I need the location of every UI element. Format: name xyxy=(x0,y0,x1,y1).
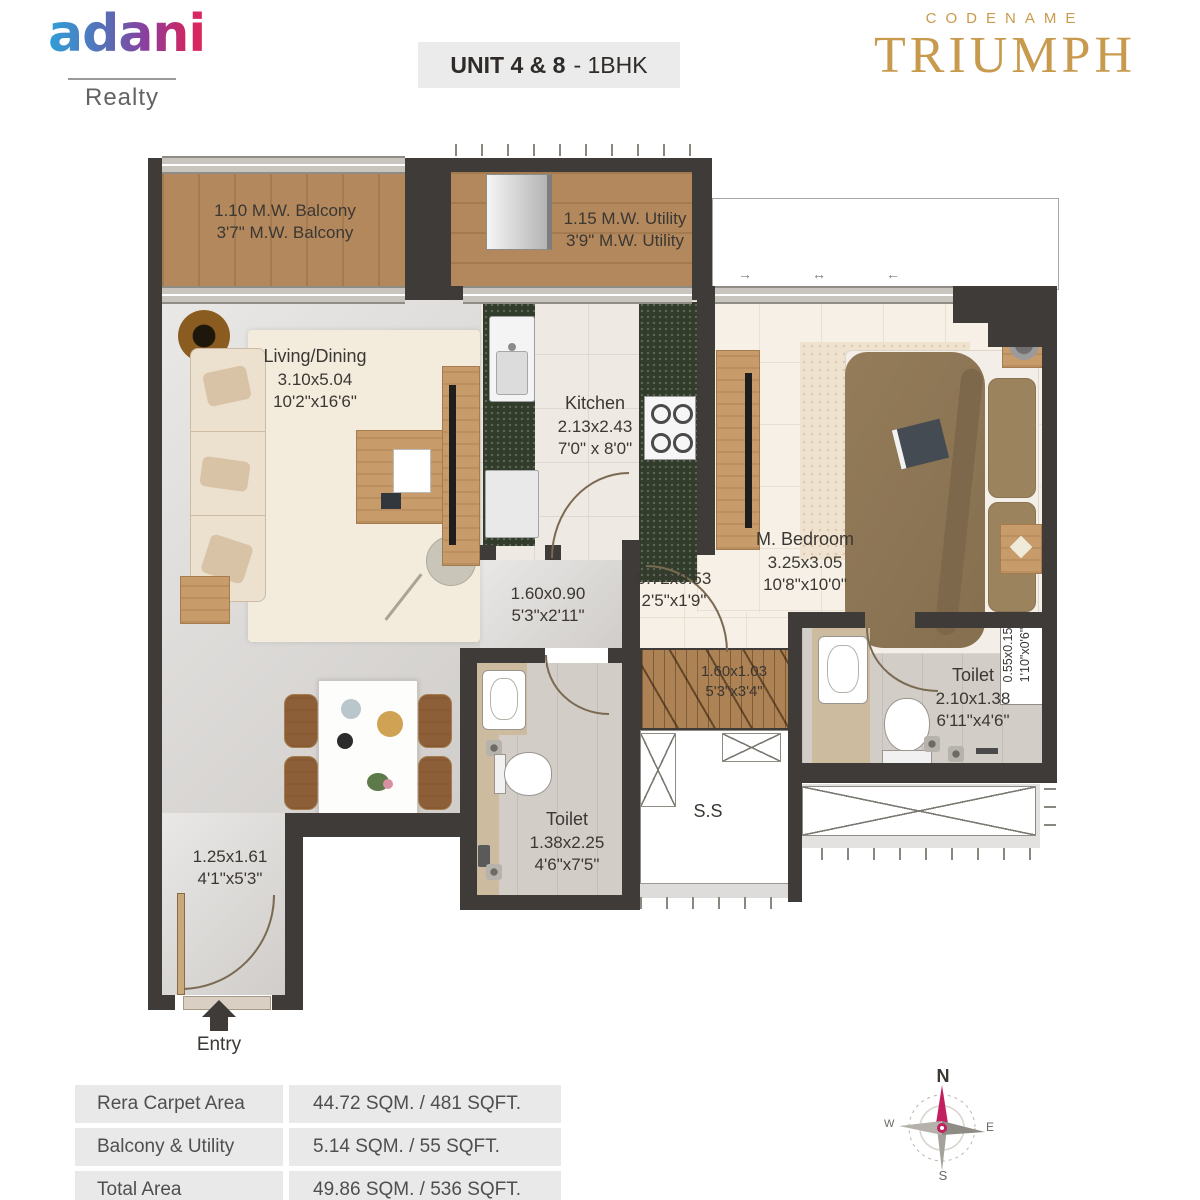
area-row-value: 5.14 SQM. / 55 SQFT. xyxy=(289,1128,561,1166)
coffee-table xyxy=(356,430,448,524)
project-title: TRIUMPH xyxy=(845,26,1165,85)
toilet-common-label: Toilet1.38x2.254'6"x7'5" xyxy=(505,808,629,877)
shaft-cross-box xyxy=(640,733,676,807)
dining-chair xyxy=(284,756,318,810)
flower-decor xyxy=(383,779,393,789)
wall xyxy=(697,300,715,555)
wall xyxy=(788,763,1057,783)
tv-unit xyxy=(442,366,480,566)
wall xyxy=(1042,286,1057,643)
wall xyxy=(285,813,460,837)
dining-chair xyxy=(284,694,318,748)
table-row: Rera Carpet Area 44.72 SQM. / 481 SQFT. xyxy=(75,1085,561,1123)
washing-machine xyxy=(486,174,552,250)
living-window xyxy=(162,286,405,304)
burner xyxy=(673,433,693,453)
compass-north-label: N xyxy=(934,1066,952,1087)
compass-south-label: S xyxy=(936,1168,950,1183)
kitchen-label: Kitchen2.13x2.437'0" x 8'0" xyxy=(533,392,657,461)
washbasin-bowl xyxy=(827,645,859,693)
unit-title-type: - 1BHK xyxy=(573,52,647,78)
kitchen-sink xyxy=(489,316,535,402)
wall-jamb xyxy=(480,545,496,560)
wall xyxy=(692,286,715,300)
floor-drain xyxy=(486,864,502,880)
slider-arrow: ← xyxy=(886,266,900,282)
project-codename: CODENAME xyxy=(855,10,1155,27)
bedroom-tv-screen xyxy=(745,373,752,528)
sink-basin xyxy=(496,351,528,395)
foyer-dim-label: 1.25x1.614'1"x5'3" xyxy=(170,846,290,891)
hatch-ticks xyxy=(795,848,1042,860)
dining-table xyxy=(318,680,418,814)
bed-lobby-dim-label: 0.72x0.532'5"x1'9" xyxy=(622,568,726,613)
unit-title-box: UNIT 4 & 8- 1BHK xyxy=(418,42,680,88)
washbasin xyxy=(818,636,868,704)
logo-divider xyxy=(68,78,176,80)
bedroom-window xyxy=(715,286,955,304)
wall xyxy=(405,286,463,300)
compass-rose xyxy=(892,1078,992,1178)
dining-chair xyxy=(418,694,452,748)
shaft-sill xyxy=(640,883,788,898)
entry-arrow xyxy=(202,1000,236,1017)
area-row-label: Rera Carpet Area xyxy=(75,1085,283,1123)
washbasin xyxy=(482,670,526,730)
table-row: Balcony & Utility 5.14 SQM. / 55 SQFT. xyxy=(75,1128,561,1166)
living-label: Living/Dining3.10x5.0410'2"x16'6" xyxy=(230,345,400,414)
sink-faucet xyxy=(508,343,516,351)
entry-arrow-stem xyxy=(210,1016,228,1031)
wall xyxy=(802,612,865,628)
entry-door-leaf xyxy=(177,893,185,995)
entry-label: Entry xyxy=(184,1032,254,1057)
sofa-pillow xyxy=(199,456,251,492)
wall xyxy=(148,995,175,1010)
washbasin-bowl xyxy=(490,678,518,720)
table-row: Total Area 49.86 SQM. / 536 SQFT. xyxy=(75,1171,561,1200)
coffee-table-notebook xyxy=(381,493,401,509)
compass-west-label: W xyxy=(884,1118,894,1130)
passage-dim-label: 1.60x0.905'3"x2'11" xyxy=(492,583,604,628)
area-row-label: Total Area xyxy=(75,1171,283,1200)
area-row-value: 44.72 SQM. / 481 SQFT. xyxy=(289,1085,561,1123)
towel-rail xyxy=(976,748,998,754)
wall xyxy=(460,648,477,895)
sofa-cushion-line xyxy=(191,431,265,432)
wc-tank xyxy=(882,750,932,764)
nightstand xyxy=(1000,524,1042,574)
wardrobe-dim-label: 1.60x1.035'3"x3'4" xyxy=(688,662,780,702)
compass-east-label: E xyxy=(986,1120,994,1134)
sofa-cushion-line xyxy=(191,515,265,516)
tv-screen xyxy=(449,385,456,545)
nightstand-decor xyxy=(1010,536,1033,559)
balcony-window xyxy=(162,156,405,174)
wc xyxy=(504,752,552,796)
ledge-cross-box xyxy=(802,786,1036,836)
utility-label: 1.15 M.W. Utility3'9" M.W. Utility xyxy=(545,208,705,253)
wall xyxy=(460,895,640,910)
wall xyxy=(451,158,692,172)
wall xyxy=(148,158,162,1010)
unit-title-bold: UNIT 4 & 8 xyxy=(450,52,565,78)
side-table xyxy=(180,576,230,624)
hatch-ticks-side xyxy=(1044,788,1056,840)
floor-plan-page: adani Realty UNIT 4 & 8- 1BHK CODENAME T… xyxy=(0,0,1200,1200)
burner xyxy=(673,404,693,424)
area-row-label: Balcony & Utility xyxy=(75,1128,283,1166)
bedroom-label: M. Bedroom3.25x3.0510'8"x10'0" xyxy=(740,528,870,597)
shaft-cross-box xyxy=(722,733,781,762)
bowl-decor xyxy=(337,733,353,749)
wall xyxy=(1042,612,1057,783)
slider-arrow: ↔ xyxy=(812,266,826,282)
hatch-ticks xyxy=(640,897,790,909)
pillow xyxy=(988,378,1036,498)
shaft-label: S.S xyxy=(680,800,736,824)
wall xyxy=(272,995,303,1010)
bedroom-tv-panel xyxy=(716,350,760,550)
area-row-value: 49.86 SQM. / 536 SQFT. xyxy=(289,1171,561,1200)
floor-drain xyxy=(948,746,964,762)
area-table: Rera Carpet Area 44.72 SQM. / 481 SQFT. … xyxy=(75,1085,561,1200)
teapot-decor xyxy=(341,699,361,719)
logo-division: Realty xyxy=(62,84,182,112)
wall xyxy=(405,158,451,290)
duct-dim-label: 0.55x0.151'10"x0'6" xyxy=(1000,610,1034,700)
adani-logo: adani xyxy=(48,4,205,64)
kitchen-window xyxy=(463,286,692,304)
slider-arrow: → xyxy=(738,266,752,282)
floor-drain xyxy=(924,736,940,752)
coffee-table-book xyxy=(393,449,431,493)
dining-chair xyxy=(418,756,452,810)
hatch-ticks xyxy=(455,144,705,156)
wall xyxy=(788,612,802,902)
balcony-label: 1.10 M.W. Balcony3'7" M.W. Balcony xyxy=(190,200,380,245)
tray-decor xyxy=(377,711,403,737)
wall xyxy=(460,648,545,663)
fridge xyxy=(485,470,539,538)
